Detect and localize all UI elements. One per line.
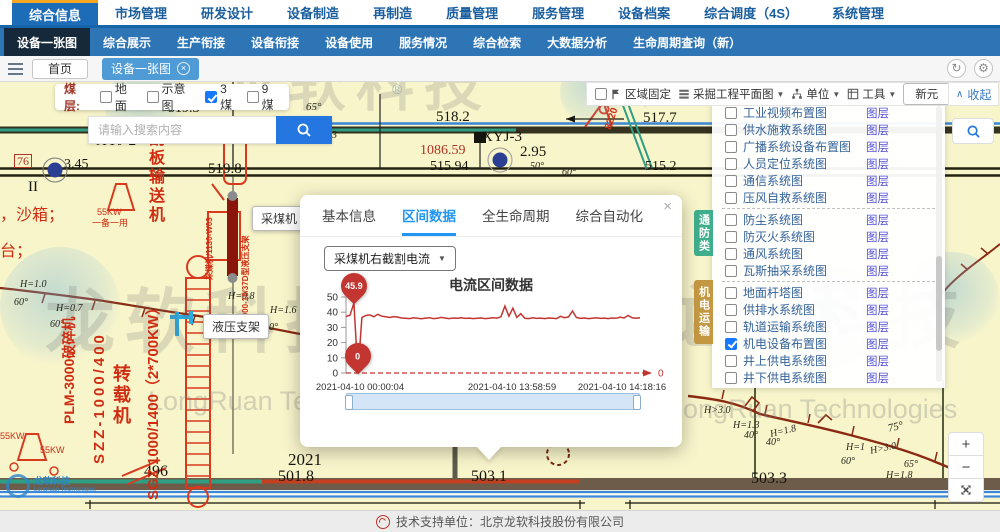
map-label: 2.95 xyxy=(520,145,546,160)
layer-checkbox[interactable] xyxy=(725,214,737,226)
map-label: 65° xyxy=(306,102,321,113)
top-nav-item[interactable]: 设备档案 xyxy=(601,0,687,25)
layer-label: 轨道运输系统图 xyxy=(743,318,827,335)
option-label: 9煤 xyxy=(262,82,280,113)
layer-row: 瓦斯抽采系统图图层 xyxy=(712,262,945,279)
metric-select[interactable]: 采煤机右截割电流 ▼ xyxy=(324,246,456,271)
category-tab-ventilation[interactable]: 通防类 xyxy=(694,210,713,256)
search-icon xyxy=(296,122,312,138)
layer-label: 井下供电系统图 xyxy=(743,369,827,386)
map-label: 518.2 xyxy=(436,110,470,125)
toolbar-label: 单位 xyxy=(806,86,829,102)
layer-row: 通风系统图图层 xyxy=(712,245,945,262)
svg-text:40: 40 xyxy=(327,308,339,319)
layer-checkbox[interactable] xyxy=(725,231,737,243)
sub-nav-item[interactable]: 大数据分析 xyxy=(534,28,620,56)
map-label: 55KW xyxy=(40,446,65,455)
window-icons: ↻ ⚙ xyxy=(947,59,993,78)
data-panel-tab[interactable]: 综合自动化 xyxy=(576,205,644,236)
longruan-red-logo-icon xyxy=(376,515,390,529)
map-label: 60° xyxy=(841,457,855,467)
layer-link[interactable]: 图层 xyxy=(866,370,889,386)
chevron-down-icon: ▼ xyxy=(888,90,896,99)
layers-icon xyxy=(678,88,690,100)
map-label: 517.7 xyxy=(643,111,677,126)
layer-row: 井上供电系统图图层 xyxy=(712,352,945,369)
layer-row: 工业视频布置图图层 xyxy=(712,104,945,121)
layer-panel: 工业视频布置图图层供水施救系统图图层广播系统设备布置图图层人员定位系统图图层通信… xyxy=(712,100,945,388)
layer-label: 防灭火系统图 xyxy=(743,228,815,245)
map-label: H=1.8 xyxy=(886,471,912,481)
tab-home[interactable]: 首页 xyxy=(32,59,88,79)
checkbox[interactable] xyxy=(205,91,217,103)
map-label: 1086.59 xyxy=(420,144,466,158)
map-label: 515.2 xyxy=(645,160,677,174)
tab-device-map[interactable]: 设备一张图 × xyxy=(102,58,199,80)
sub-nav-item[interactable]: 综合展示 xyxy=(90,28,164,56)
layer-checkbox[interactable] xyxy=(725,158,737,170)
unit-tree-icon xyxy=(791,88,803,100)
close-icon[interactable]: × xyxy=(663,198,672,215)
layer-link[interactable]: 图层 xyxy=(866,139,889,155)
layer-checkbox[interactable] xyxy=(725,265,737,277)
layer-link[interactable]: 图层 xyxy=(866,285,889,301)
map-label: 519.8 xyxy=(208,162,242,177)
layer-row: 机电设备布置图图层 xyxy=(712,335,945,352)
divider xyxy=(722,281,935,282)
top-nav: 综合信息市场管理研发设计设备制造再制造质量管理服务管理设备档案综合调度（4S）系… xyxy=(0,0,1000,28)
layer-link[interactable]: 图层 xyxy=(866,122,889,138)
top-nav-item[interactable]: 再制造 xyxy=(356,0,429,25)
map-label: 515.94 xyxy=(430,160,469,174)
chevron-down-icon: ▼ xyxy=(832,90,840,99)
layer-checkbox[interactable] xyxy=(725,248,737,260)
data-panel-tabs: 基本信息区间数据全生命周期综合自动化 xyxy=(300,195,682,237)
collapse-button[interactable]: ∧ 收起 xyxy=(948,82,999,106)
map-label: 50° xyxy=(530,162,544,172)
coal-seam-panel: 煤层: 地面示意图3煤9煤 xyxy=(55,84,289,110)
top-nav-item[interactable]: 设备制造 xyxy=(270,0,356,25)
layer-row: 压风自救系统图图层 xyxy=(712,189,945,206)
layer-label: 地面杆塔图 xyxy=(743,284,803,301)
chart-range-slider[interactable] xyxy=(346,393,640,410)
scrollbar-thumb[interactable] xyxy=(936,256,942,351)
chevron-down-icon: ▼ xyxy=(777,90,785,99)
plan-dropdown[interactable]: 采掘工程平面图▼ xyxy=(678,86,784,102)
footer-text: 技术支持单位：北京龙软科技股份有限公司 xyxy=(396,513,624,530)
search-input[interactable] xyxy=(88,116,276,144)
top-nav-item[interactable]: 综合调度（4S） xyxy=(687,0,815,25)
layer-checkbox[interactable] xyxy=(725,124,737,136)
map-label: 55KW xyxy=(97,208,122,217)
layer-label: 压风自救系统图 xyxy=(743,189,827,206)
refresh-icon[interactable]: ↻ xyxy=(947,59,966,78)
tab-close-icon[interactable]: × xyxy=(177,62,190,75)
layer-label: 供水施救系统图 xyxy=(743,121,827,138)
map-label: 一备一用 xyxy=(92,219,128,228)
sub-nav-item[interactable]: 服务情况 xyxy=(386,28,460,56)
layer-label: 通信系统图 xyxy=(743,172,803,189)
map-label: 刮板输送机 xyxy=(146,130,162,225)
map-label: H>3.0 xyxy=(704,406,730,416)
layer-link[interactable]: 图层 xyxy=(866,302,889,318)
map-label: 3.45 xyxy=(64,158,89,172)
toolbar-label: 工具 xyxy=(862,86,885,102)
coal-seam-option[interactable]: 9煤 xyxy=(247,82,280,113)
map-label: 60° xyxy=(14,298,28,308)
layer-label: 机电设备布置图 xyxy=(743,335,827,352)
map-label: SZZ-1000/400 xyxy=(92,332,107,464)
map-label: 76 xyxy=(14,154,32,168)
coal-seam-option[interactable]: 示意图 xyxy=(147,82,198,114)
layer-checkbox[interactable] xyxy=(725,372,737,384)
expand-icon xyxy=(959,483,973,497)
map-label: 40° xyxy=(744,431,758,441)
new-button[interactable]: 新元 xyxy=(903,83,950,105)
layer-checkbox[interactable] xyxy=(725,321,737,333)
map-search-bar xyxy=(88,116,332,144)
layer-link[interactable]: 图层 xyxy=(866,336,889,352)
layer-label: 井上供电系统图 xyxy=(743,352,827,369)
flag-icon xyxy=(610,88,622,100)
map-label: H=1.0 xyxy=(20,280,46,290)
scrollbar xyxy=(936,106,942,382)
map-label: H=0.7 xyxy=(56,304,82,314)
layer-link[interactable]: 图层 xyxy=(866,156,889,172)
tab-label: 设备一张图 xyxy=(111,60,171,77)
chevron-up-icon: ∧ xyxy=(956,89,963,100)
fit-view-button[interactable] xyxy=(948,478,984,502)
svg-text:20: 20 xyxy=(327,338,339,349)
data-panel-tab[interactable]: 区间数据 xyxy=(402,205,456,236)
map-label: PLM-3000破碎机 xyxy=(62,317,76,424)
map-label: H=1 xyxy=(846,443,865,453)
sub-nav-item[interactable]: 设备一张图 xyxy=(4,28,90,56)
layer-row: 人员定位系统图图层 xyxy=(712,155,945,172)
watermark-registered-icon: ® xyxy=(392,82,402,96)
sub-nav-item[interactable]: 生命周期查询（新） xyxy=(620,28,754,56)
svg-text:2021-04-10 14:18:16: 2021-04-10 14:18:16 xyxy=(578,382,666,393)
tools-icon xyxy=(847,88,859,100)
layer-row: 地面杆塔图图层 xyxy=(712,284,945,301)
coal-seam-option[interactable]: 地面 xyxy=(100,82,139,114)
region-fix-toggle[interactable]: 区域固定 xyxy=(595,86,671,102)
svg-text:10: 10 xyxy=(327,353,339,364)
layer-row: 广播系统设备布置图图层 xyxy=(712,138,945,155)
svg-text:50: 50 xyxy=(327,293,339,304)
toolbar-label: 区域固定 xyxy=(625,86,671,102)
layer-link[interactable]: 图层 xyxy=(866,319,889,335)
map-label: 60° xyxy=(562,168,576,178)
layer-link[interactable]: 图层 xyxy=(866,353,889,369)
map-device-tooltip[interactable]: 采煤机 xyxy=(252,206,306,231)
map-label: 503.3 xyxy=(751,471,787,487)
top-nav-item[interactable]: 服务管理 xyxy=(515,0,601,25)
layer-row: 供水施救系统图图层 xyxy=(712,121,945,138)
layer-label: 瓦斯抽采系统图 xyxy=(743,262,827,279)
layer-checkbox[interactable] xyxy=(725,355,737,367)
layer-label: 广播系统设备布置图 xyxy=(743,138,851,155)
map-toolbar: 区域固定 采掘工程平面图▼ 单位▼ 工具▼ 新元 xyxy=(586,82,959,106)
map-label: 转载机 xyxy=(112,364,130,427)
layer-label: 通风系统图 xyxy=(743,245,803,262)
tab-bar: 首页 设备一张图 × ↻ ⚙ xyxy=(0,56,1000,82)
logo-text-en: Longruan Technologies xyxy=(34,487,96,494)
layer-row: 防尘系统图图层 xyxy=(712,211,945,228)
layer-link[interactable]: 图层 xyxy=(866,246,889,262)
map-label: 40° xyxy=(766,438,780,448)
chevron-down-icon: ▼ xyxy=(438,254,446,263)
data-panel-tab[interactable]: 基本信息 xyxy=(322,205,376,236)
search-icon xyxy=(966,124,981,139)
collapse-label: 收起 xyxy=(967,86,991,103)
metric-select-value: 采煤机右截割电流 xyxy=(334,250,430,267)
option-label: 3煤 xyxy=(220,82,238,113)
gear-icon[interactable]: ⚙ xyxy=(974,59,993,78)
map-label: 55KW xyxy=(0,432,25,441)
layer-label: 供排水系统图 xyxy=(743,301,815,318)
map-label: 采煤机/1130-W03 xyxy=(206,217,214,280)
sub-nav-item[interactable]: 综合检索 xyxy=(460,28,534,56)
layer-checkbox[interactable] xyxy=(725,141,737,153)
map-label: XYJ-3 xyxy=(482,130,522,145)
layer-link[interactable]: 图层 xyxy=(866,190,889,206)
menu-icon[interactable] xyxy=(0,56,30,81)
top-nav-item[interactable]: 系统管理 xyxy=(815,0,901,25)
sub-nav-item[interactable]: 设备衔接 xyxy=(238,28,312,56)
top-nav-item[interactable]: 研发设计 xyxy=(184,0,270,25)
layer-row: 通信系统图图层 xyxy=(712,172,945,189)
layer-row: 井下供电系统图图层 xyxy=(712,369,945,386)
coal-seam-option[interactable]: 3煤 xyxy=(205,82,238,113)
coal-seam-label: 煤层: xyxy=(64,82,92,114)
longruan-corner-logo: 龙软科技 Longruan Technologies xyxy=(6,474,96,498)
checkbox[interactable] xyxy=(147,91,159,103)
svg-text:0: 0 xyxy=(332,369,338,380)
checkbox[interactable] xyxy=(595,88,607,100)
svg-text:2021-04-10 00:00:04: 2021-04-10 00:00:04 xyxy=(316,382,404,393)
map-label: 2021 xyxy=(288,451,322,468)
layer-row: 轨道运输系统图图层 xyxy=(712,318,945,335)
category-tab-mechanical[interactable]: 机电运输 xyxy=(694,280,713,344)
coal-seam-options: 地面示意图3煤9煤 xyxy=(100,82,280,114)
layer-row: 防灭火系统图图层 xyxy=(712,228,945,245)
layer-row: 供排水系统图图层 xyxy=(712,301,945,318)
svg-text:2021-04-10 13:58:59: 2021-04-10 13:58:59 xyxy=(468,382,556,393)
option-label: 地面 xyxy=(115,82,139,114)
logo-text-cn: 龙软科技 xyxy=(34,477,96,487)
divider xyxy=(722,208,935,209)
layer-link[interactable]: 图层 xyxy=(866,229,889,245)
map-label: 501.8 xyxy=(278,469,314,485)
layer-checkbox[interactable] xyxy=(725,287,737,299)
svg-text:0: 0 xyxy=(658,369,664,380)
map-label: ，沙箱； xyxy=(0,208,64,224)
top-nav-item[interactable]: 综合信息 xyxy=(12,0,98,25)
layer-checkbox[interactable] xyxy=(725,304,737,316)
map-zoom-controls: + − xyxy=(948,432,984,502)
longruan-logo-icon xyxy=(6,474,30,498)
tools-dropdown[interactable]: 工具▼ xyxy=(847,86,896,102)
layer-label: 人员定位系统图 xyxy=(743,155,827,172)
search-button[interactable] xyxy=(276,116,332,144)
layer-link[interactable]: 图层 xyxy=(866,173,889,189)
sub-nav-item[interactable]: 设备使用 xyxy=(312,28,386,56)
layer-checkbox[interactable] xyxy=(725,192,737,204)
map-label: 503.1 xyxy=(471,469,507,485)
map-label: H=1.6 xyxy=(270,306,296,316)
top-nav-item[interactable]: 质量管理 xyxy=(429,0,515,25)
map-viewport[interactable]: 龙软科技 龙软科技 龙软科技 龙软科技 LongRuan Technologie… xyxy=(0,82,1000,510)
data-panel-tab[interactable]: 全生命周期 xyxy=(482,205,550,236)
map-label: II xyxy=(28,180,38,195)
device-data-panel: × 基本信息区间数据全生命周期综合自动化 采煤机右截割电流 ▼ 电流区间数据 0… xyxy=(300,195,682,447)
panel-pointer xyxy=(476,446,502,460)
map-search-button[interactable] xyxy=(952,118,994,144)
footer: 技术支持单位：北京龙软科技股份有限公司 xyxy=(0,510,1000,532)
zoom-out-button[interactable]: − xyxy=(948,455,984,479)
svg-text:30: 30 xyxy=(327,323,339,334)
layer-label: 工业视频布置图 xyxy=(743,104,827,121)
map-device-tooltip[interactable]: 液压支架 xyxy=(203,314,269,339)
unit-dropdown[interactable]: 单位▼ xyxy=(791,86,840,102)
zoom-in-button[interactable]: + xyxy=(948,432,984,456)
layer-checkbox[interactable] xyxy=(725,175,737,187)
map-label: 65° xyxy=(904,460,918,470)
map-label: SGZ 1000/1400（2*700KW） xyxy=(146,300,161,500)
layer-label: 防尘系统图 xyxy=(743,211,803,228)
layer-list: 工业视频布置图图层供水施救系统图图层广播系统设备布置图图层人员定位系统图图层通信… xyxy=(712,104,945,386)
layer-checkbox[interactable] xyxy=(725,338,737,350)
sub-nav-item[interactable]: 生产衔接 xyxy=(164,28,238,56)
layer-link[interactable]: 图层 xyxy=(866,212,889,228)
toolbar-label: 采掘工程平面图 xyxy=(693,86,774,102)
option-label: 示意图 xyxy=(162,82,198,114)
layer-link[interactable]: 图层 xyxy=(866,105,889,121)
sub-nav: 设备一张图综合展示生产衔接设备衔接设备使用服务情况综合检索大数据分析生命周期查询… xyxy=(0,28,1000,56)
layer-checkbox[interactable] xyxy=(725,107,737,119)
top-nav-item[interactable]: 市场管理 xyxy=(98,0,184,25)
map-label: 台； xyxy=(0,244,32,260)
checkbox[interactable] xyxy=(247,91,259,103)
layer-link[interactable]: 图层 xyxy=(866,263,889,279)
checkbox[interactable] xyxy=(100,91,112,103)
